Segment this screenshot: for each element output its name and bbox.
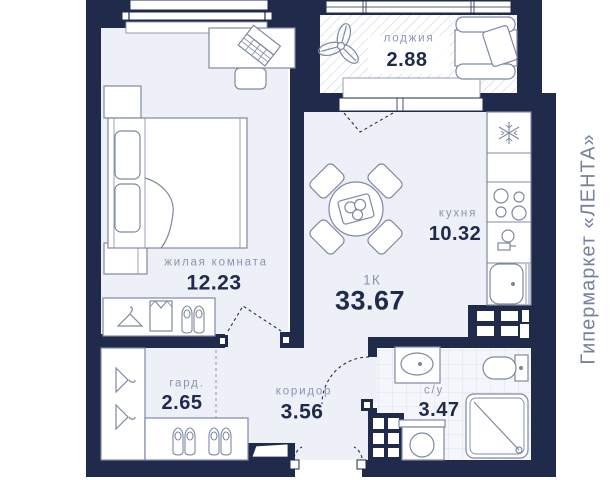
loggia-area: 2.88: [387, 50, 428, 70]
nightstand-top: [104, 86, 141, 118]
floor-plan-page: лоджия 2.88 жилая комната 12.23 кухня 10…: [0, 0, 615, 480]
shaft-kitchen-bath: [468, 305, 531, 341]
wall-bottom-right: [362, 460, 556, 477]
wall-bottom-left: [86, 460, 295, 477]
living-area: 12.23: [186, 273, 241, 294]
corridor-area: 3.56: [281, 402, 324, 423]
wall-bathroom-left-top: [368, 348, 377, 357]
toilet: [483, 355, 528, 381]
kitchen-corridor-passage: [304, 337, 368, 348]
bathroom-name: с/у: [424, 385, 444, 397]
loggia-window: [326, 1, 511, 13]
washing-machine: [399, 420, 445, 460]
bathroom-area: 3.47: [419, 400, 460, 420]
kitchen-name: кухня: [439, 208, 477, 220]
wardrobe-rail: [101, 348, 145, 460]
balcony-door-unit: [339, 78, 483, 111]
wall-loggia-right: [517, 0, 542, 93]
wardrobe-shelf: [145, 418, 248, 460]
kitchen-area: 10.32: [429, 224, 482, 244]
sofa: [455, 17, 518, 79]
wardrobe-area: 2.65: [162, 393, 203, 413]
shower: [466, 394, 528, 458]
wardrobe-name: гард.: [169, 378, 204, 390]
pillow: [115, 131, 140, 179]
desk-chair: [235, 68, 266, 89]
entrance-door-leaf: [252, 444, 288, 457]
bed: [108, 118, 247, 248]
wall-right: [531, 93, 556, 477]
living-door-opening: [225, 332, 280, 348]
closet-shelf: [103, 298, 215, 336]
unit-total-area: 33.67: [335, 288, 405, 315]
loggia-name: лоджия: [384, 33, 435, 45]
side-banner-text: Гипермаркет «ЛЕНТА»: [578, 133, 601, 364]
living-name: жилая комната: [164, 257, 268, 269]
pillow: [115, 184, 140, 232]
bathroom-door-opening: [368, 355, 377, 403]
kitchen-counter: [487, 112, 531, 305]
corridor-name: коридор: [276, 386, 332, 398]
washbasin: [395, 347, 440, 383]
wall-left: [86, 0, 101, 477]
